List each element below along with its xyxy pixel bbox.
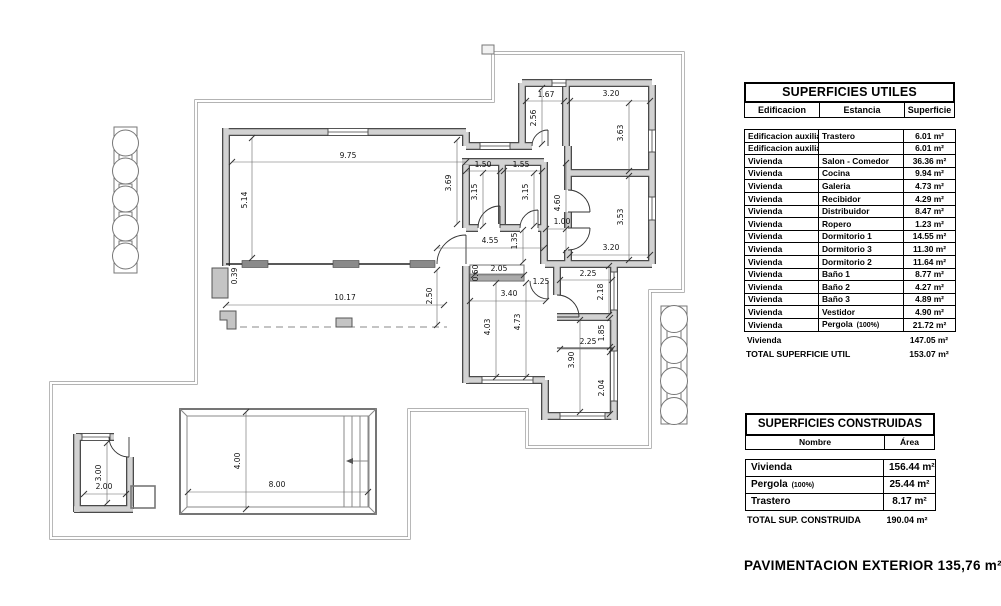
cell-estancia: Dormitorio 1 [819, 230, 904, 243]
subtotal-value: 147.05 m² [903, 334, 955, 346]
cell-edificacion: Vivienda [745, 281, 819, 294]
cell-estancia: Distribuidor [819, 205, 904, 218]
table-row: ViviendaDormitorio 211.64 m² [745, 255, 956, 268]
table-row: Vivienda156.44 m² [746, 460, 936, 477]
pergola-post [336, 318, 352, 327]
pavement-note: PAVIMENTACION EXTERIOR 135,76 m² [744, 558, 1001, 573]
utiles-rows-table: Edificacion auxiliarTrastero6.01 m²Edifi… [744, 129, 956, 332]
dimension-label: 1.50 [475, 160, 492, 169]
cell-superficie: 6.01 m² [904, 130, 956, 143]
tree-icon [661, 368, 688, 395]
utiles-total-row: TOTAL SUPERFICIE UTIL 153.07 m² [744, 348, 955, 361]
dimension-label: 2.56 [529, 109, 538, 126]
cell-nombre: Vivienda [746, 460, 884, 477]
cell-edificacion: Vivienda [745, 306, 819, 319]
subtotal-label: Vivienda [744, 334, 903, 346]
table-row: ViviendaDormitorio 114.55 m² [745, 230, 956, 243]
cell-note: (100%) [788, 482, 814, 489]
tree-icon [113, 158, 139, 184]
dimension-label: 3.15 [470, 183, 479, 200]
cell-edificacion: Vivienda [745, 293, 819, 306]
dimension-label: 2.25 [580, 269, 597, 278]
cell-superficie: 11.64 m² [904, 255, 956, 268]
cell-superficie: 21.72 m² [904, 318, 956, 331]
cell-superficie: 11.30 m² [904, 243, 956, 256]
cell-superficie: 4.90 m² [904, 306, 956, 319]
table-row: Edificacion auxiliarTrastero6.01 m² [745, 130, 956, 143]
cell-superficie: 14.55 m² [904, 230, 956, 243]
cell-area: 156.44 m² [884, 460, 936, 477]
cell-estancia: Galeria [819, 180, 904, 193]
cell-superficie: 4.27 m² [904, 281, 956, 294]
table-row: ViviendaGaleria4.73 m² [745, 180, 956, 193]
cell-edificacion: Vivienda [745, 268, 819, 281]
cell-superficie: 4.73 m² [904, 180, 956, 193]
dimension-label: 1.67 [538, 90, 555, 99]
cell-edificacion: Vivienda [745, 205, 819, 218]
dimension-label: 4.55 [482, 236, 499, 245]
dimension-label: 1.35 [510, 232, 519, 249]
tree-row-left [113, 127, 139, 273]
dimension-label: 3.20 [603, 243, 620, 252]
cell-estancia: Recibidor [819, 192, 904, 205]
cell-estancia: Salon - Comedor [819, 155, 904, 168]
gate-post [482, 45, 494, 54]
dimension-label: 3.53 [616, 208, 625, 225]
dimension-label: 3.69 [444, 174, 453, 191]
pergola [212, 268, 447, 329]
construidas-table-header: Nombre Área [745, 436, 935, 450]
tree-icon [661, 398, 688, 425]
cell-superficie: 9.94 m² [904, 167, 956, 180]
dimension-label: 2.05 [491, 264, 508, 273]
total-label: TOTAL SUPERFICIE UTIL [744, 348, 903, 361]
column-header-area: Área [884, 436, 934, 449]
construidas-total-row: TOTAL SUP. CONSTRUIDA 190.04 m² [745, 514, 935, 527]
dimension-label: 2.50 [425, 287, 434, 304]
construidas-rows-table: Vivienda156.44 m²Pergola (100%)25.44 m²T… [745, 459, 936, 511]
table-row: Trastero8.17 m² [746, 494, 936, 511]
dimension-label: 3.00 [94, 464, 103, 481]
table-row: ViviendaPergola (100%)21.72 m² [745, 318, 956, 331]
dimension-label: 8.00 [269, 480, 286, 489]
dimension-label: 4.00 [233, 452, 242, 469]
cell-edificacion: Vivienda [745, 192, 819, 205]
dimension-label: 0.60 [471, 264, 480, 281]
cell-superficie: 6.01 m² [904, 142, 956, 155]
cell-superficie: 8.47 m² [904, 205, 956, 218]
dimension-label: 9.75 [340, 151, 357, 160]
cell-nombre: Pergola (100%) [746, 477, 884, 494]
dimension-label: 0.39 [230, 267, 239, 284]
dimension-label: 2.04 [597, 379, 606, 396]
column-header-edificacion: Edificacion [745, 103, 819, 117]
tree-icon [113, 130, 139, 156]
table-row: ViviendaSalon - Comedor36.36 m² [745, 155, 956, 168]
cell-superficie: 4.89 m² [904, 293, 956, 306]
cell-edificacion: Vivienda [745, 218, 819, 231]
total-value: 190.04 m² [879, 514, 935, 527]
cell-estancia: Pergola (100%) [819, 318, 904, 331]
cell-estancia: Trastero [819, 130, 904, 143]
utiles-table-header: Edificacion Estancia Superficie [744, 103, 955, 118]
dimension-label: 1.25 [533, 277, 550, 286]
cell-edificacion: Vivienda [745, 167, 819, 180]
dimension-label: 2.00 [96, 482, 113, 491]
pergola-corner-post [220, 311, 236, 329]
pool [180, 409, 376, 514]
dimension-label: 3.15 [521, 183, 530, 200]
cell-edificacion: Vivienda [745, 318, 819, 331]
cell-estancia: Baño 1 [819, 268, 904, 281]
cell-area: 25.44 m² [884, 477, 936, 494]
dimension-label: 3.90 [567, 351, 576, 368]
cell-edificacion: Vivienda [745, 180, 819, 193]
dimension-label: 3.40 [501, 289, 518, 298]
table-row: ViviendaCocina9.94 m² [745, 167, 956, 180]
tree-icon [113, 243, 139, 269]
cell-edificacion: Vivienda [745, 243, 819, 256]
table-row: ViviendaBaño 24.27 m² [745, 281, 956, 294]
cell-estancia: Vestidor [819, 306, 904, 319]
dimension-label: 3.63 [616, 124, 625, 141]
tree-icon [661, 306, 688, 333]
dimension-label: 4.03 [483, 318, 492, 335]
cell-estancia: Dormitorio 3 [819, 243, 904, 256]
cell-estancia: Baño 2 [819, 281, 904, 294]
house-pillar [212, 268, 228, 298]
dimension-label: 2.18 [596, 283, 605, 300]
cell-estancia [819, 142, 904, 155]
dimension-label: 1.55 [513, 160, 530, 169]
table-row: Edificacion auxiliar6.01 m² [745, 142, 956, 155]
superficies-construidas-table: SUPERFICIES CONSTRUIDAS Nombre Área Vivi… [745, 413, 935, 527]
floorplan-sheet: 9.755.140.393.691.501.553.153.151.672.56… [0, 0, 1001, 606]
tree-icon [113, 215, 139, 241]
table-row: ViviendaDormitorio 311.30 m² [745, 243, 956, 256]
cell-edificacion: Vivienda [745, 155, 819, 168]
utiles-table-title: SUPERFICIES UTILES [744, 82, 955, 103]
construidas-table-title: SUPERFICIES CONSTRUIDAS [745, 413, 935, 436]
table-row: ViviendaBaño 34.89 m² [745, 293, 956, 306]
cell-estancia: Cocina [819, 167, 904, 180]
column-header-superficie: Superficie [904, 103, 954, 117]
total-label: TOTAL SUP. CONSTRUIDA [745, 514, 879, 527]
table-row: ViviendaBaño 18.77 m² [745, 268, 956, 281]
cell-superficie: 36.36 m² [904, 155, 956, 168]
tree-icon [661, 337, 688, 364]
table-row: ViviendaVestidor4.90 m² [745, 306, 956, 319]
dimension-label: 1.85 [597, 324, 606, 341]
table-row: ViviendaRecibidor4.29 m² [745, 192, 956, 205]
dimension-label: 2.25 [580, 337, 597, 346]
cell-nombre: Trastero [746, 494, 884, 511]
dimension-label: 4.73 [513, 313, 522, 330]
column-header-nombre: Nombre [746, 436, 884, 449]
total-value: 153.07 m² [903, 348, 955, 361]
cell-note: (100%) [853, 322, 879, 329]
cell-superficie: 4.29 m² [904, 192, 956, 205]
cell-edificacion: Edificacion auxiliar [745, 142, 819, 155]
tree-icon [113, 186, 139, 212]
table-row: Pergola (100%)25.44 m² [746, 477, 936, 494]
cell-edificacion: Vivienda [745, 230, 819, 243]
superficies-utiles-table: SUPERFICIES UTILES Edificacion Estancia … [744, 82, 955, 361]
table-row: ViviendaRopero1.23 m² [745, 218, 956, 231]
tree-row-right [661, 306, 688, 425]
column-header-estancia: Estancia [819, 103, 904, 117]
dimension-label: 10.17 [334, 293, 356, 302]
cell-area: 8.17 m² [884, 494, 936, 511]
cell-estancia: Baño 3 [819, 293, 904, 306]
cell-edificacion: Vivienda [745, 255, 819, 268]
dimension-label: 1.00 [554, 217, 571, 226]
cell-estancia: Dormitorio 2 [819, 255, 904, 268]
cell-superficie: 8.77 m² [904, 268, 956, 281]
dimension-label: 4.60 [553, 194, 562, 211]
trastero-porch [131, 486, 155, 508]
cell-edificacion: Edificacion auxiliar [745, 130, 819, 143]
table-row: ViviendaDistribuidor8.47 m² [745, 205, 956, 218]
cell-superficie: 1.23 m² [904, 218, 956, 231]
dimension-label: 3.20 [603, 89, 620, 98]
cell-estancia: Ropero [819, 218, 904, 231]
living-room-glass-front [226, 261, 435, 268]
utiles-subtotal-row: Vivienda 147.05 m² [744, 334, 955, 346]
dimension-label: 5.14 [240, 191, 249, 208]
